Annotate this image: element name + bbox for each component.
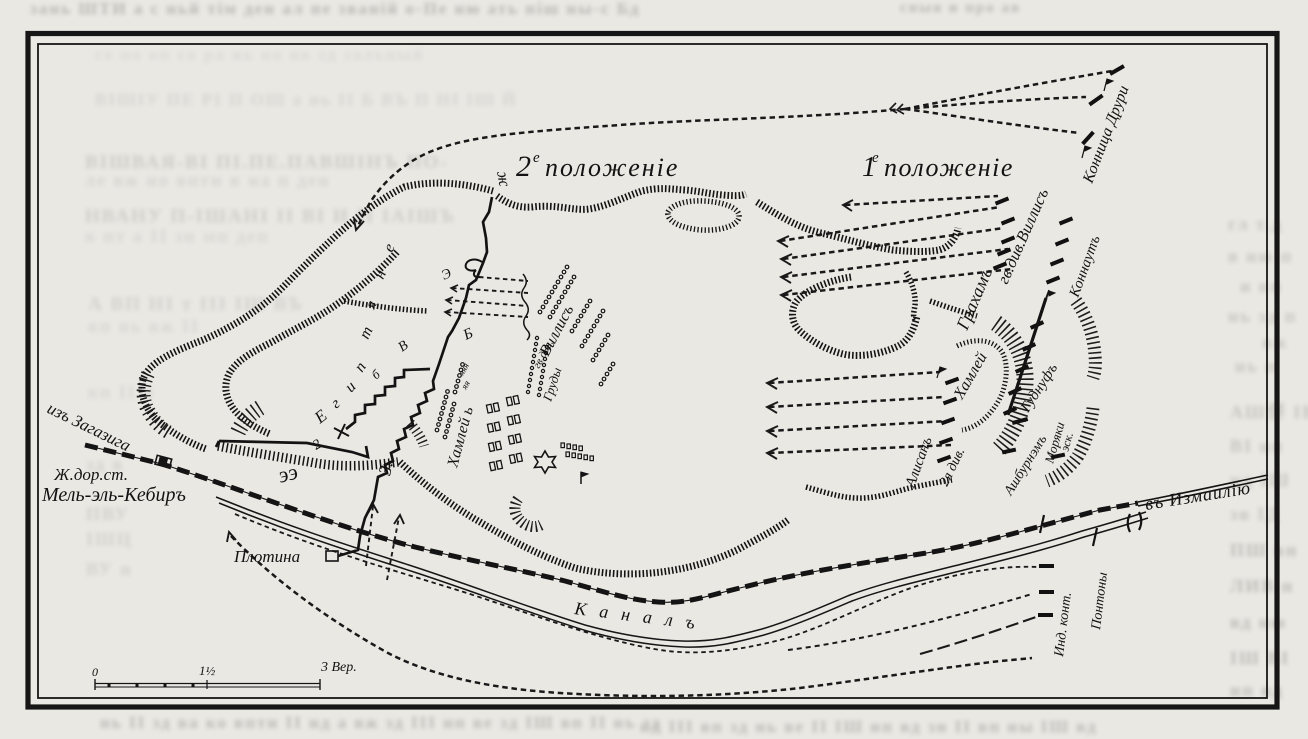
svg-text:вп нь вж ІІ: вп нь вж ІІ: [88, 316, 200, 336]
svg-text:0: 0: [92, 665, 98, 679]
svg-text:Плотина: Плотина: [233, 547, 300, 566]
svg-text:зв ІД: зв ІД: [1230, 504, 1281, 524]
svg-text:нь зд п: нь зд п: [1228, 306, 1297, 326]
svg-text:в пт а ІІ зн мп деп: в пт а ІІ зн мп деп: [85, 226, 270, 246]
svg-text:1½: 1½: [199, 663, 216, 678]
svg-text:Ж.дор.ст.: Ж.дор.ст.: [53, 465, 128, 484]
svg-text:ЛИВ п: ЛИВ п: [1230, 576, 1294, 596]
svg-text:2: 2: [516, 150, 531, 183]
svg-text:сныя и про ав: сныя и про ав: [900, 0, 1021, 16]
svg-text:3 Вер.: 3 Вер.: [320, 660, 357, 675]
svg-text:положеніе: положеніе: [545, 153, 679, 182]
svg-text:нь ІІ зд ва ко впти ІІ нд а вж: нь ІІ зд ва ко впти ІІ нд а вж зд ІІІ нп…: [100, 713, 662, 732]
svg-text:НВАНУ П-ІШАНІ ІІ ВІ И ІІ ІАІШЪ: НВАНУ П-ІШАНІ ІІ ВІ И ІІ ІАІШЪ: [85, 206, 456, 227]
svg-text:е: е: [872, 150, 879, 166]
svg-text:нь п: нь п: [1235, 356, 1278, 376]
svg-text:ПВУ: ПВУ: [86, 504, 130, 524]
svg-text:ПШ вп: ПШ вп: [1230, 540, 1298, 560]
svg-text:е: е: [533, 150, 540, 166]
svg-text:се по оп со ра нь по вв зд зал: се по оп со ра нь по вв зд зальный: [95, 45, 425, 64]
svg-text:Мель-эль-Кебиръ: Мель-эль-Кебиръ: [41, 484, 186, 506]
svg-text:зань ШТИ а с ньй тім ден ал пе: зань ШТИ а с ньй тім ден ал пе званій о-…: [30, 0, 640, 18]
svg-text:положеніе: положеніе: [884, 153, 1014, 182]
svg-text:нд ІІІ вп зд нь ве ІІ ІШ нп вд: нд ІІІ вп зд нь ве ІІ ІШ нп вд зн ІІ вп …: [640, 717, 1098, 736]
svg-text:ІШ ВІ: ІШ ВІ: [1230, 648, 1290, 668]
svg-text:ВУ н: ВУ н: [86, 559, 133, 579]
svg-text:ВІШІУ ПЕ РІ П ОШ а нь ІІ Б ВЪ: ВІШІУ ПЕ РІ П ОШ а нь ІІ Б ВЪ П НІ ІШ Й: [95, 90, 517, 109]
svg-text:ле вж но впти в на п ден: ле вж но впти в на п ден: [85, 170, 330, 190]
svg-text:ІШЦ: ІШЦ: [86, 529, 133, 549]
svg-text:АШ併 ІВ: АШ併 ІВ: [1230, 401, 1308, 422]
svg-text:в ню п: в ню п: [1228, 246, 1293, 266]
